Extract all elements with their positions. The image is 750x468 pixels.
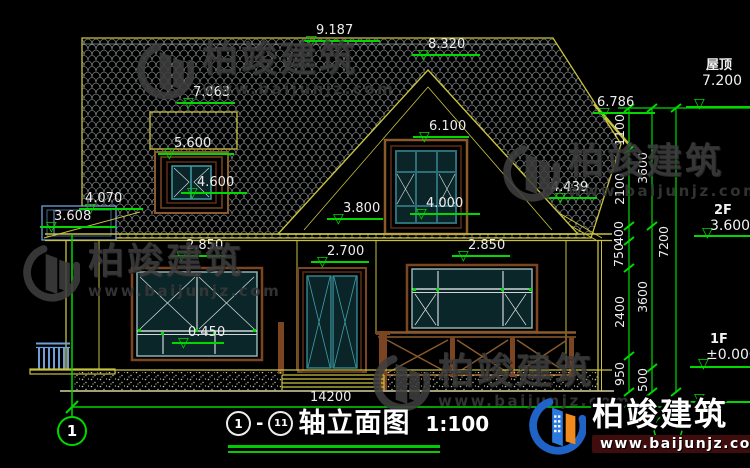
brand-name: 柏竣建筑 xyxy=(592,397,750,432)
elevation-triangle-icon xyxy=(694,97,705,111)
vertical-dim: 3600 xyxy=(636,265,650,329)
elevation-marker: 5.600 xyxy=(158,136,234,151)
title-separator: - xyxy=(256,413,263,434)
elevation-marker: 4.070 xyxy=(79,191,143,206)
elevation-marker: 2.850 xyxy=(452,238,510,253)
watermark-logo-icon xyxy=(372,352,430,412)
elevation-marker: 3.608 xyxy=(40,209,116,224)
entry-door xyxy=(298,268,366,372)
level-label: 屋顶 xyxy=(706,58,750,73)
watermark-logo-icon xyxy=(502,142,560,202)
brand-logo: .bb1{fill:#2a7ae0}.bb2{fill:#f08a1d}.bd{… xyxy=(528,394,750,456)
elevation-marker: 0.450 xyxy=(172,325,224,340)
elevation-marker: 3.800 xyxy=(327,201,383,216)
elevation-marker: 9.187 xyxy=(300,23,380,38)
watermark-logo-icon xyxy=(22,242,80,302)
watermark: 柏竣建筑 www.baijunjz.com xyxy=(502,142,750,202)
elevation-value: 9.187 xyxy=(316,23,380,38)
watermark-logo-icon xyxy=(136,40,194,100)
watermark-brand: 柏竣建筑 xyxy=(202,42,395,78)
elevation-triangle-icon xyxy=(702,226,713,240)
title-block: 1 - 11 轴立面图 1:100 xyxy=(226,410,489,437)
elevation-marker: 4.600 xyxy=(181,175,247,190)
elevation-triangle-icon xyxy=(698,357,709,371)
vertical-dim: 7200 xyxy=(657,210,671,274)
level-marker-2f: 2F 3.600 xyxy=(694,203,750,237)
drawing-scale: 1:100 xyxy=(425,412,489,436)
elevation-marker: 6.100 xyxy=(413,119,469,134)
overall-width-dim: 14200 xyxy=(310,390,351,405)
watermark: 柏竣建筑 www.baijunjz.com xyxy=(22,242,281,302)
vertical-dim: 750 xyxy=(612,223,626,287)
elevation-marker: 2.700 xyxy=(311,244,369,259)
cad-elevation-screenshot: { "drawing": { "elevation_markers": [ {"… xyxy=(0,0,750,468)
title-underline xyxy=(228,445,440,448)
title-axis-start: 1 xyxy=(226,411,251,436)
brand-logo-icon: .bb1{fill:#2a7ae0}.bb2{fill:#f08a1d}.bd{… xyxy=(528,394,586,456)
level-value: 7.200 xyxy=(702,73,750,89)
level-marker-roof: 屋顶 7.200 xyxy=(686,58,750,108)
watermark: 柏竣建筑 www.baijunjz.com xyxy=(136,40,395,100)
elevation-marker: 8.320 xyxy=(412,37,480,52)
title-underline xyxy=(228,451,440,453)
drawing-title: 轴立面图 xyxy=(298,410,410,437)
elevation-marker: 4.000 xyxy=(410,196,480,211)
level-line xyxy=(686,106,750,108)
title-axis-end: 11 xyxy=(268,411,293,436)
axis-bubble-left: 1 xyxy=(57,416,87,446)
level-marker-1f: 1F ±0.000 xyxy=(690,332,750,368)
right-window xyxy=(407,265,537,332)
watermark-url: www.baijunjz.com xyxy=(202,80,395,98)
vertical-dim: 2400 xyxy=(613,280,627,344)
brand-url: www.baijunjz.com xyxy=(592,435,750,453)
